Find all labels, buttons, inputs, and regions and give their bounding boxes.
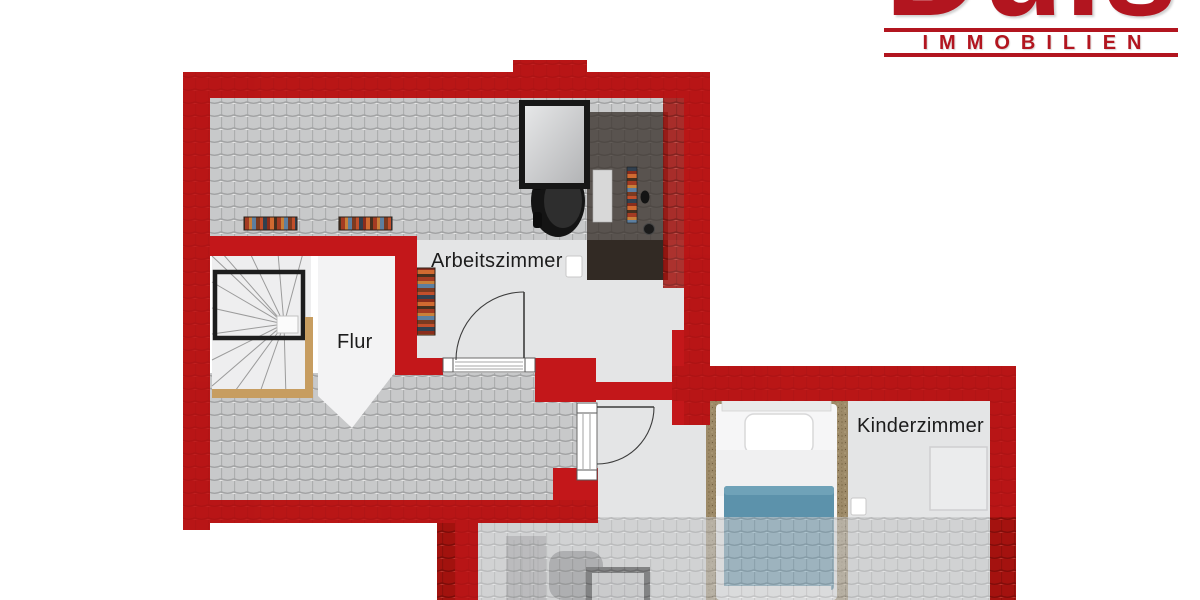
bookshelf-1: [244, 217, 297, 230]
wall-inner-horizontal: [183, 236, 417, 256]
light-switch-1: [566, 256, 582, 277]
wall-door1-left: [395, 358, 443, 375]
door-nook-floor: [596, 400, 672, 517]
logo-subtitle-text: IMMOBILIEN: [878, 33, 1186, 53]
winder-staircase: [212, 253, 313, 398]
desk-papers: [593, 170, 612, 222]
stair-wood-rail-right: [305, 317, 313, 398]
stair-landing: [277, 316, 298, 333]
skylight-window-1: [519, 100, 590, 189]
bookshelf-2: [339, 217, 392, 230]
roof-overhang-right-b: [990, 517, 1016, 600]
roof-slope-overlay: [478, 517, 990, 600]
blanket-fold: [724, 486, 834, 495]
wall-hall-right: [395, 236, 417, 375]
sideboard: [930, 447, 987, 510]
wall-nook-top: [596, 382, 672, 400]
desk: [587, 112, 668, 280]
desk-books: [627, 167, 637, 223]
logo-rule-bottom: [884, 53, 1178, 57]
study-floor-extension: [596, 358, 684, 384]
floor-plan-drawing: [0, 0, 1200, 600]
bookshelf-3: [417, 268, 435, 335]
company-logo: Duis IMMOBILIEN: [878, 0, 1186, 60]
wall-door1-right: [535, 358, 596, 402]
pillow: [745, 414, 813, 454]
room-label-childrens-room: Kinderzimmer: [857, 416, 984, 436]
desk-cup: [644, 224, 655, 235]
roof-overhang-left-b: [437, 515, 455, 600]
light-switch-2: [851, 498, 866, 515]
headboard: [722, 400, 831, 411]
desk-mouse: [641, 191, 650, 204]
room-label-study: Arbeitszimmer: [431, 251, 563, 271]
floor-plan-page: Arbeitszimmer Flur Kinderzimmer Duis IMM…: [0, 0, 1200, 600]
room-label-hallway: Flur: [337, 332, 373, 352]
stair-wood-rail-bottom: [212, 389, 313, 398]
